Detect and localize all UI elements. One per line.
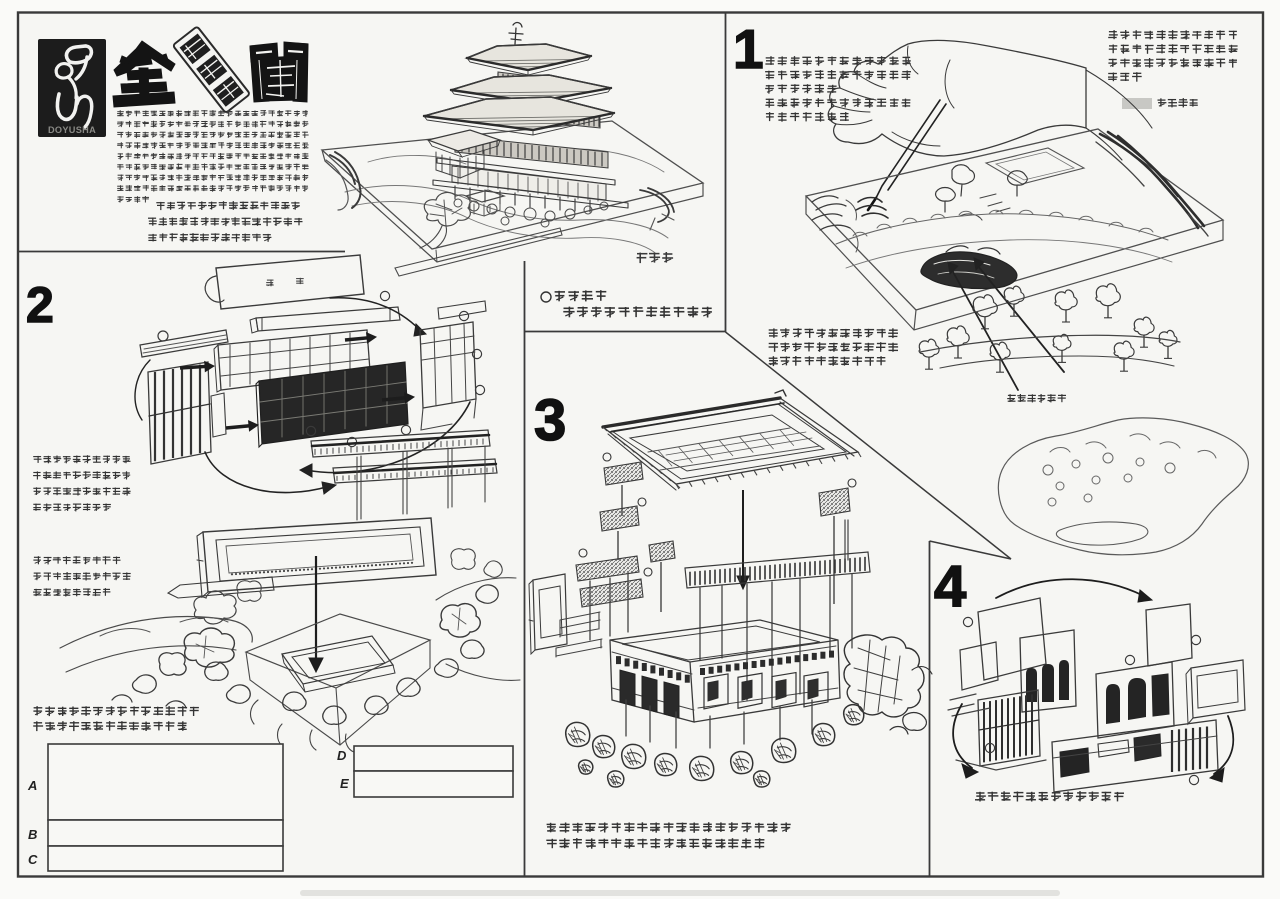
svg-text:B: B [28,827,37,842]
svg-text:1: 1 [733,18,764,80]
svg-text:E: E [340,776,349,791]
svg-text:D: D [337,748,347,763]
svg-text:4: 4 [934,554,966,619]
svg-text:2: 2 [26,277,54,333]
svg-text:DOYUSHA: DOYUSHA [48,125,96,135]
svg-text:3: 3 [534,388,566,453]
svg-text:C: C [28,852,38,867]
svg-text:A: A [27,778,37,793]
